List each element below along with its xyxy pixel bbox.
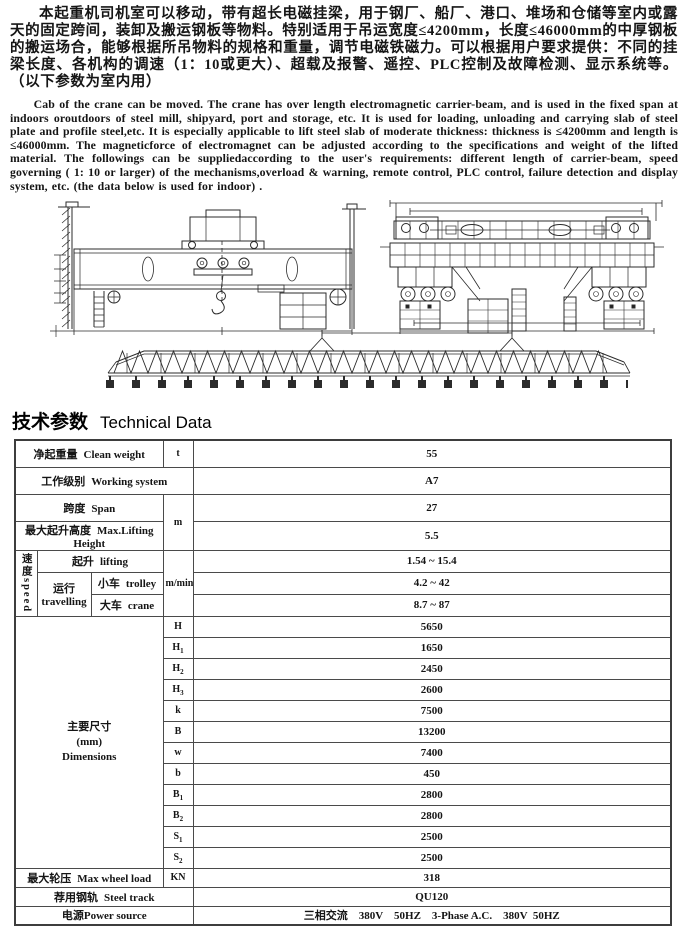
symbol-subscript: 2	[180, 815, 184, 823]
symbol-subscript: 2	[180, 668, 184, 676]
symbol: H	[174, 621, 182, 632]
label-zh: 主要尺寸	[18, 720, 161, 735]
heading-zh: 技术参数	[12, 407, 88, 434]
spec-label: 小车trolley	[91, 572, 163, 594]
dimension-symbol: b	[163, 763, 193, 784]
carrier-beam-drawing	[106, 330, 630, 384]
label-en: lifting	[100, 556, 128, 568]
dimension-symbol: k	[163, 700, 193, 721]
label-zh: 荐用钢轨	[54, 892, 98, 904]
row-speed-trolley: 运行travelling 小车trolley 4.2 ~ 42	[15, 572, 671, 594]
symbol: H	[172, 642, 180, 653]
label-zh: 起升	[72, 556, 94, 568]
label-en: crane	[128, 600, 154, 612]
row-power-source: 电源Power source 三相交流 380V 50HZ 3-Phase A.…	[15, 906, 671, 925]
dimension-symbol: B	[163, 721, 193, 742]
dimension-symbol: S2	[163, 847, 193, 868]
label-zh: 小车	[98, 578, 120, 590]
symbol-subscript: 1	[180, 647, 184, 655]
spec-value: 318	[193, 868, 671, 887]
spec-value: 8.7 ~ 87	[193, 594, 671, 616]
intro-paragraph-en: Cab of the crane can be moved. The crane…	[10, 98, 678, 193]
symbol: B	[173, 789, 180, 800]
label-en: Steel track	[104, 892, 154, 904]
symbol: w	[174, 747, 181, 758]
label-en: Working system	[91, 476, 167, 488]
speed-group-label: 速度speed	[15, 550, 37, 616]
label-zh: 净起重量	[34, 449, 78, 461]
spec-label: 电源Power source	[15, 906, 193, 925]
row-dimension: 主要尺寸 (mm) Dimensions H 5650	[15, 616, 671, 637]
spec-value: 450	[193, 763, 671, 784]
symbol: H	[172, 684, 180, 695]
technical-data-table: 净起重量Clean weight t 55 工作级别Working system…	[14, 439, 672, 926]
label-zh: 工作级别	[41, 476, 85, 488]
dimension-symbol: B1	[163, 784, 193, 805]
dimension-symbol: B2	[163, 805, 193, 826]
label-zh: 运行	[53, 583, 75, 595]
end-view-drawing	[380, 200, 664, 334]
symbol: H	[172, 663, 180, 674]
heading-en: Technical Data	[100, 413, 212, 433]
spec-label: 工作级别Working system	[15, 467, 193, 494]
spec-value: QU120	[193, 887, 671, 906]
row-speed-lifting: 速度speed 起升lifting m/min 1.54 ~ 15.4	[15, 550, 671, 572]
symbol-subscript: 1	[180, 794, 184, 802]
dimension-symbol: H	[163, 616, 193, 637]
row-steel-track: 荐用钢轨Steel track QU120	[15, 887, 671, 906]
dimension-symbol: H2	[163, 658, 193, 679]
symbol-subscript: 3	[180, 689, 184, 697]
spec-unit: t	[163, 440, 193, 467]
spec-label: 跨度Span	[15, 494, 163, 521]
spec-label: 荐用钢轨Steel track	[15, 887, 193, 906]
spec-value: 13200	[193, 721, 671, 742]
symbol-subscript: 1	[179, 836, 183, 844]
row-speed-crane: 大车crane 8.7 ~ 87	[15, 594, 671, 616]
label-en: Power source	[84, 910, 147, 922]
label-zh: 大车	[100, 600, 122, 612]
spec-label: 最大起升高度Max.Lifting Height	[15, 521, 163, 550]
spec-value: 2450	[193, 658, 671, 679]
spec-value: 55	[193, 440, 671, 467]
spec-value: 7400	[193, 742, 671, 763]
symbol-subscript: 2	[179, 857, 183, 865]
label-zh: 最大轮压	[27, 873, 71, 885]
symbol: b	[175, 768, 181, 779]
spec-value: 2500	[193, 826, 671, 847]
technical-drawings	[10, 197, 678, 407]
label-en: trolley	[126, 578, 156, 590]
spec-value: 5.5	[193, 521, 671, 550]
spec-value: 2600	[193, 679, 671, 700]
spec-label: 大车crane	[91, 594, 163, 616]
spec-unit: m/min	[163, 550, 193, 616]
spec-unit: KN	[163, 868, 193, 887]
spec-value: 1.54 ~ 15.4	[193, 550, 671, 572]
spec-unit: m	[163, 494, 193, 550]
label-zh: 最大起升高度	[25, 525, 91, 537]
intro-paragraph-zh: 本起重机司机室可以移动，带有超长电磁挂梁，用于钢厂、船厂、港口、堆场和仓储等室内…	[10, 6, 678, 91]
spec-value: A7	[193, 467, 671, 494]
label-note: (mm)	[18, 735, 161, 750]
label-en: Dimensions	[18, 750, 161, 765]
row-clean-weight: 净起重量Clean weight t 55	[15, 440, 671, 467]
travelling-group-label: 运行travelling	[37, 572, 91, 616]
section-heading: 技术参数 Technical Data	[12, 407, 678, 434]
spec-label: 最大轮压Max wheel load	[15, 868, 163, 887]
dimension-symbol: H3	[163, 679, 193, 700]
spec-value: 2500	[193, 847, 671, 868]
side-view-drawing	[50, 202, 366, 337]
label-zh: 速度	[21, 553, 32, 578]
dimension-symbol: w	[163, 742, 193, 763]
label-en: Max wheel load	[77, 873, 151, 885]
spec-value: 5650	[193, 616, 671, 637]
label-en: speed	[21, 578, 32, 613]
label-zh: 电源	[62, 910, 84, 922]
row-max-wheel-load: 最大轮压Max wheel load KN 318	[15, 868, 671, 887]
spec-value: 27	[193, 494, 671, 521]
row-working-system: 工作级别Working system A7	[15, 467, 671, 494]
catalog-page: 本起重机司机室可以移动，带有超长电磁挂梁，用于钢厂、船厂、港口、堆场和仓储等室内…	[0, 0, 688, 926]
spec-value: 2800	[193, 784, 671, 805]
spec-value: 1650	[193, 637, 671, 658]
dimensions-group-label: 主要尺寸 (mm) Dimensions	[15, 616, 163, 868]
spec-value: 2800	[193, 805, 671, 826]
spec-value: 7500	[193, 700, 671, 721]
label-en: travelling	[41, 596, 86, 608]
row-span: 跨度Span m 27	[15, 494, 671, 521]
dimension-symbol: H1	[163, 637, 193, 658]
label-zh: 跨度	[63, 503, 85, 515]
spec-value: 三相交流 380V 50HZ 3-Phase A.C. 380V 50HZ	[193, 906, 671, 925]
label-en: Clean weight	[84, 449, 145, 461]
symbol: B	[173, 810, 180, 821]
row-max-lifting-height: 最大起升高度Max.Lifting Height 5.5	[15, 521, 671, 550]
dimension-symbol: S1	[163, 826, 193, 847]
spec-label: 起升lifting	[37, 550, 163, 572]
spec-label: 净起重量Clean weight	[15, 440, 163, 467]
symbol: B	[175, 726, 182, 737]
label-en: Span	[91, 503, 115, 515]
spec-value: 4.2 ~ 42	[193, 572, 671, 594]
symbol: k	[175, 705, 181, 716]
